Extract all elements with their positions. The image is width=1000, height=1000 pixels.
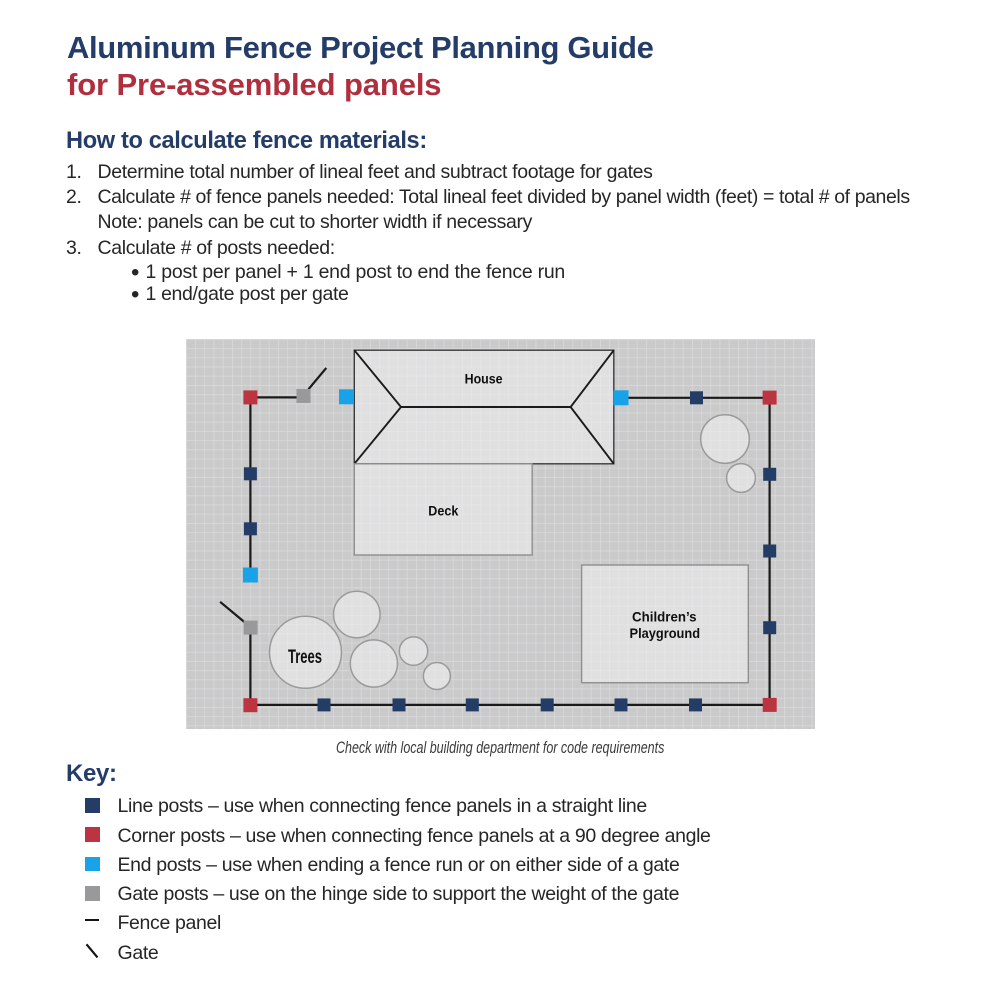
svg-text:Children’s: Children’s	[632, 610, 697, 625]
svg-text:Trees: Trees	[288, 647, 322, 668]
svg-text:House: House	[465, 372, 503, 387]
svg-text:Playground: Playground	[630, 626, 701, 641]
svg-text:Deck: Deck	[428, 503, 458, 518]
